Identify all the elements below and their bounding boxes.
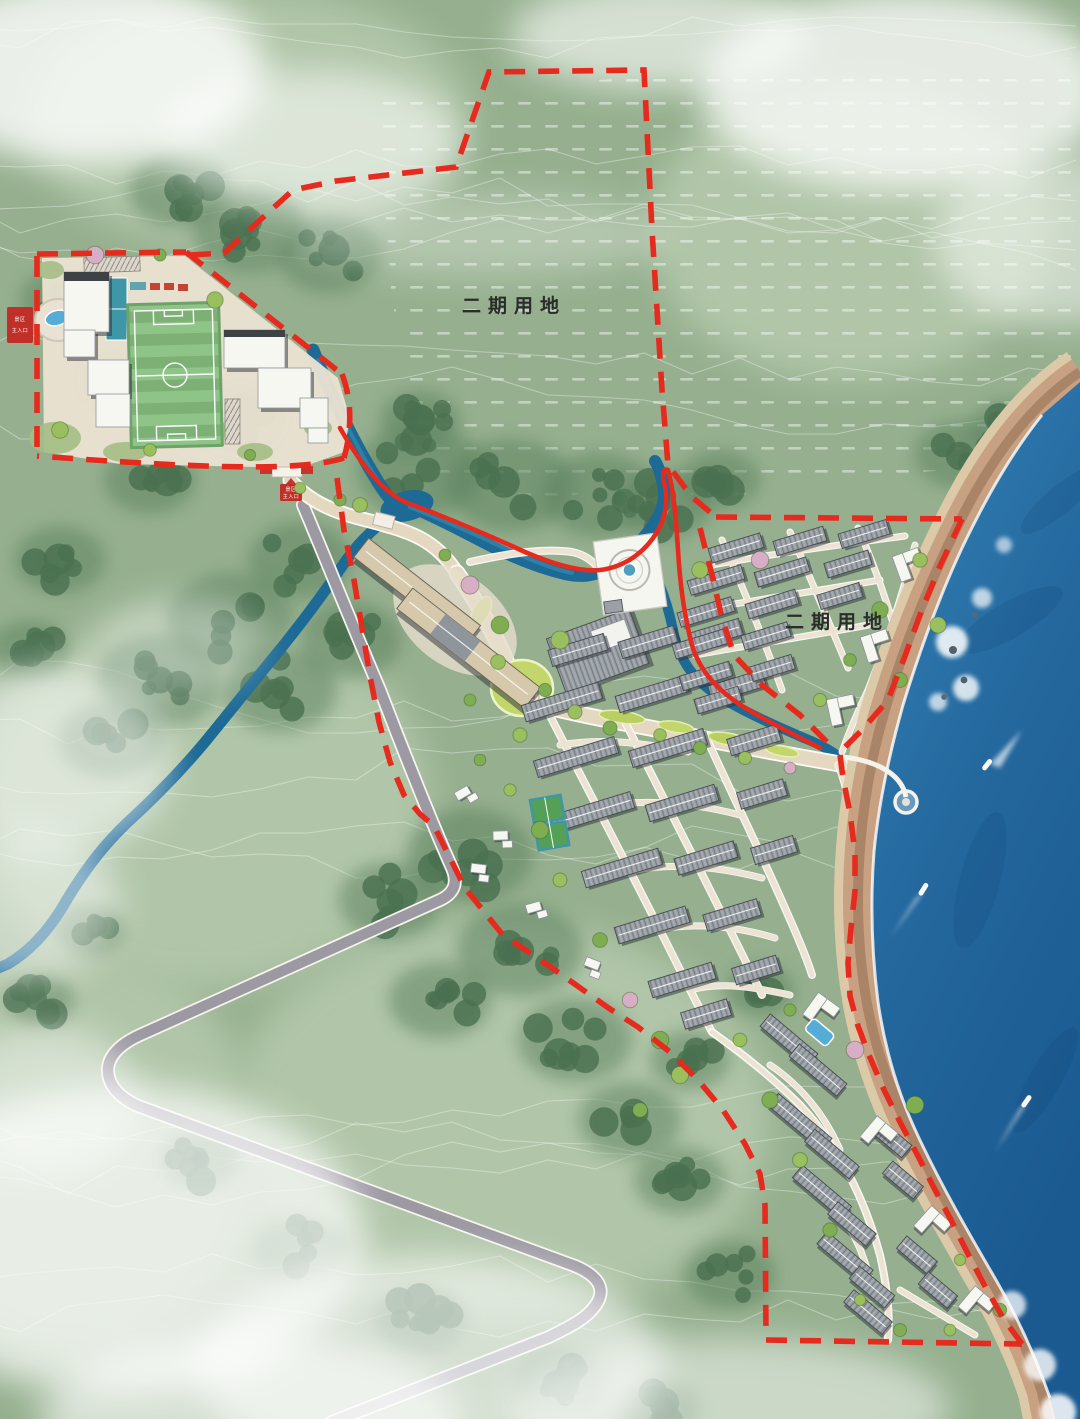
phase2-north-label: 二期用地 xyxy=(462,294,566,317)
west-entrance-sign: 景区 主入口 xyxy=(7,307,33,343)
parking-lot xyxy=(225,399,240,444)
west-entrance-sign-text: 景区 xyxy=(14,316,25,323)
phase2-east-label: 二期用地 xyxy=(785,610,889,633)
west-entrance-sign-text: 主入口 xyxy=(12,327,29,334)
south-entrance-sign-text: 主入口 xyxy=(283,493,300,500)
site-plan-map: 景区 主入口 景区 主入口 xyxy=(0,0,1080,1419)
football-field xyxy=(126,301,224,449)
helipad-plaza xyxy=(593,533,667,615)
